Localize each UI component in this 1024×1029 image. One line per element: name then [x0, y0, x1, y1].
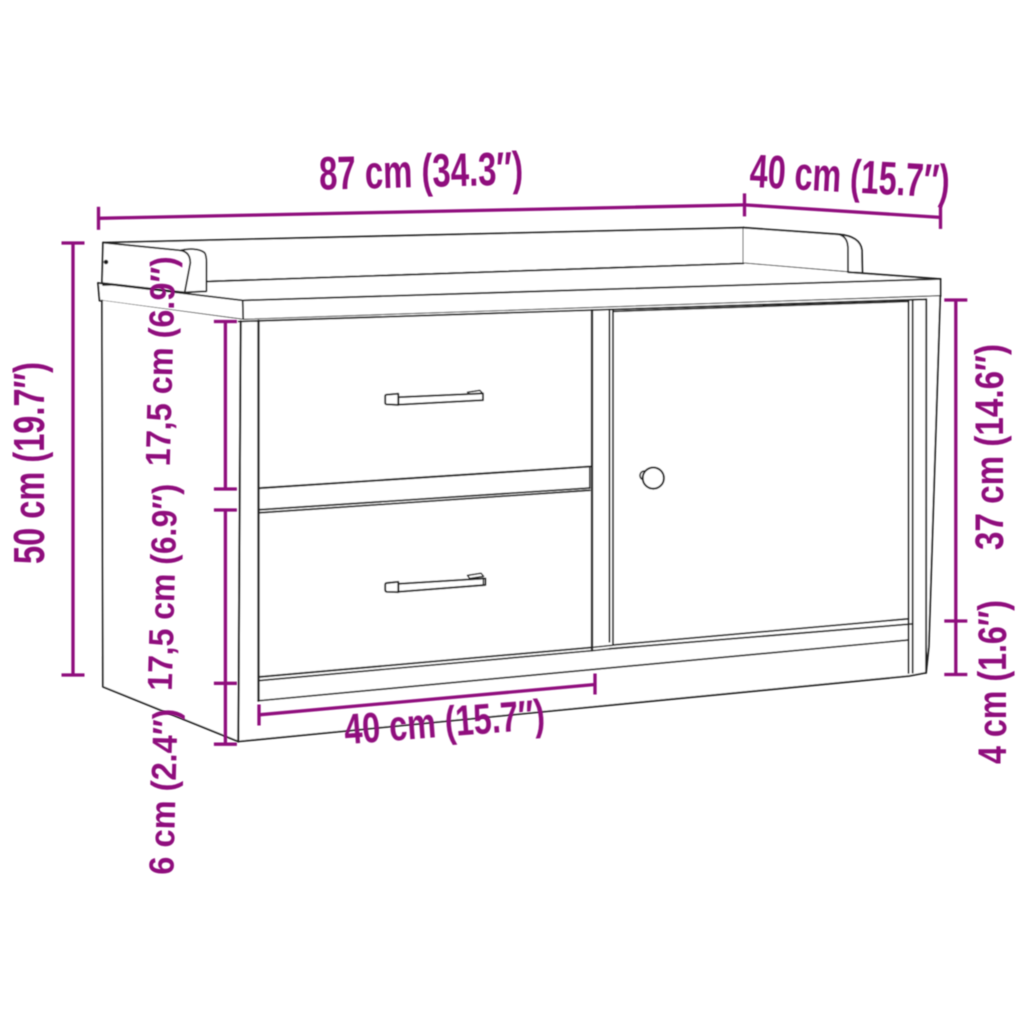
svg-text:87 cm (34.3″): 87 cm (34.3″): [318, 141, 523, 199]
svg-text:40 cm (15.7″): 40 cm (15.7″): [749, 144, 952, 208]
svg-text:17,5 cm (6.9″): 17,5 cm (6.9″): [139, 256, 183, 467]
svg-text:17,5 cm (6.9″): 17,5 cm (6.9″): [141, 483, 185, 691]
svg-text:37 cm (14.6″): 37 cm (14.6″): [968, 344, 1012, 550]
svg-text:6 cm (2.4″): 6 cm (2.4″): [142, 708, 185, 875]
svg-text:50 cm (19.7″): 50 cm (19.7″): [5, 362, 54, 564]
svg-text:4 cm (1.6″): 4 cm (1.6″): [971, 600, 1015, 764]
